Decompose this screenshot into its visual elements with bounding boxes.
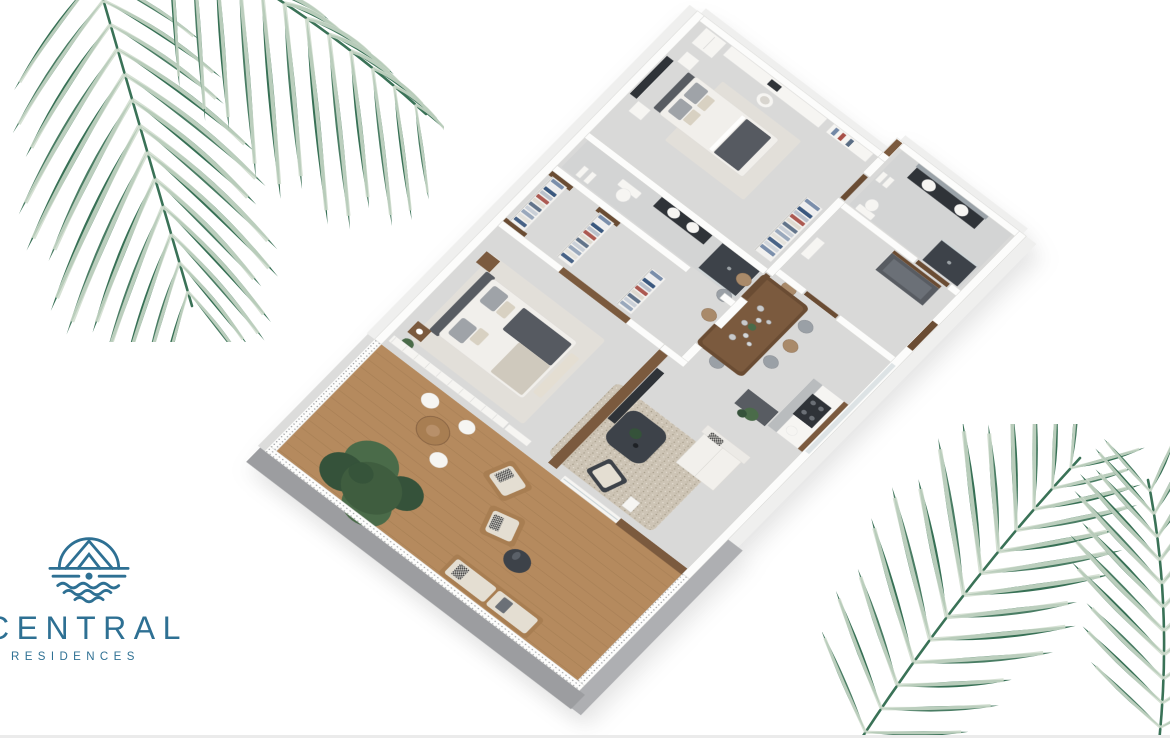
house-over-waves-icon — [46, 537, 132, 606]
palm-decoration-bottom-right — [822, 424, 1170, 738]
marketing-floorplan-image: CENTRAL RESIDENCES — [0, 0, 1170, 738]
palm-decoration-top-left — [0, 0, 444, 342]
brand-logo: CENTRAL RESIDENCES — [0, 530, 260, 710]
palm-frond — [13, 0, 278, 342]
brand-subtitle: RESIDENCES — [11, 651, 140, 663]
palm-frond — [822, 424, 1145, 738]
brand-name: CENTRAL — [0, 610, 188, 647]
